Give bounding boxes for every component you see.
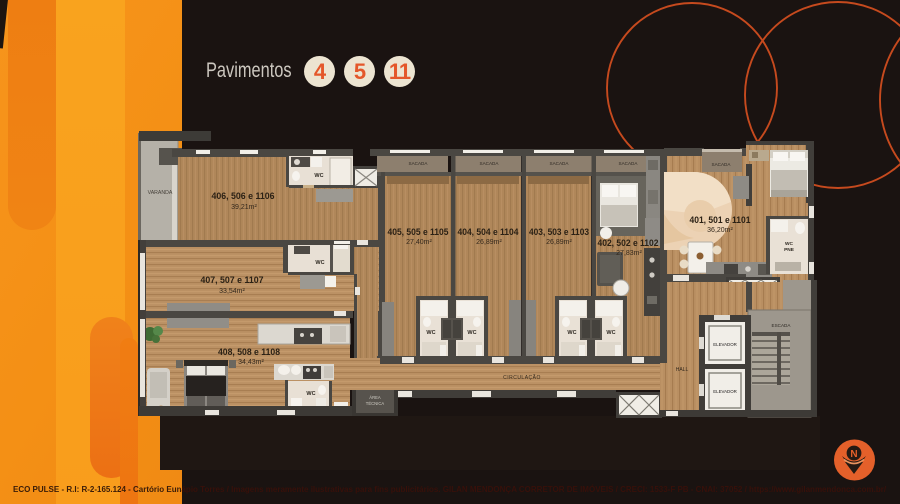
svg-text:39,21m²: 39,21m² [231, 204, 257, 211]
svg-text:27,40m²: 27,40m² [406, 239, 432, 246]
svg-text:ELEVADOR: ELEVADOR [713, 342, 737, 347]
svg-text:WC: WC [314, 173, 323, 179]
svg-text:ÁREA: ÁREA [369, 395, 381, 400]
svg-text:33,54m²: 33,54m² [219, 288, 245, 295]
svg-text:WC: WC [306, 391, 315, 397]
svg-text:34,43m²: 34,43m² [238, 359, 264, 366]
svg-text:408, 508 e 1108: 408, 508 e 1108 [218, 347, 280, 358]
svg-text:TÉCNICA: TÉCNICA [366, 401, 385, 406]
svg-text:403, 503 e 1103: 403, 503 e 1103 [529, 227, 589, 238]
svg-text:SACADA: SACADA [480, 161, 500, 166]
svg-text:SACADA: SACADA [712, 162, 732, 167]
svg-text:SACADA: SACADA [550, 161, 570, 166]
svg-text:WC: WC [315, 260, 324, 266]
svg-text:405, 505 e 1105: 405, 505 e 1105 [388, 227, 450, 238]
svg-text:404, 504 e 1104: 404, 504 e 1104 [458, 227, 520, 238]
svg-text:SACADA: SACADA [409, 161, 429, 166]
svg-text:27,83m²: 27,83m² [616, 250, 642, 257]
svg-text:ELEVADOR: ELEVADOR [713, 389, 737, 394]
svg-text:WC: WC [426, 330, 435, 336]
svg-text:WC: WC [567, 330, 576, 336]
svg-text:N: N [850, 449, 857, 460]
svg-text:SACADA: SACADA [619, 161, 639, 166]
svg-text:401, 501 e 1101: 401, 501 e 1101 [690, 215, 752, 226]
svg-text:PNE: PNE [784, 247, 795, 253]
svg-text:406, 506 e 1106: 406, 506 e 1106 [212, 191, 275, 202]
svg-text:26,89m²: 26,89m² [546, 239, 572, 246]
svg-text:WC: WC [606, 330, 615, 336]
svg-text:ESCADA: ESCADA [772, 323, 792, 328]
svg-text:WC: WC [785, 241, 794, 247]
svg-text:407, 507 e 1107: 407, 507 e 1107 [201, 275, 264, 286]
svg-text:WC: WC [467, 330, 476, 336]
svg-text:26,89m²: 26,89m² [476, 239, 502, 246]
svg-text:VARANDA: VARANDA [148, 190, 173, 196]
svg-text:402, 502 e 1102: 402, 502 e 1102 [598, 238, 659, 249]
svg-text:CIRCULAÇÃO: CIRCULAÇÃO [503, 374, 541, 381]
svg-text:HALL: HALL [676, 367, 689, 373]
svg-text:36,20m²: 36,20m² [707, 227, 733, 234]
